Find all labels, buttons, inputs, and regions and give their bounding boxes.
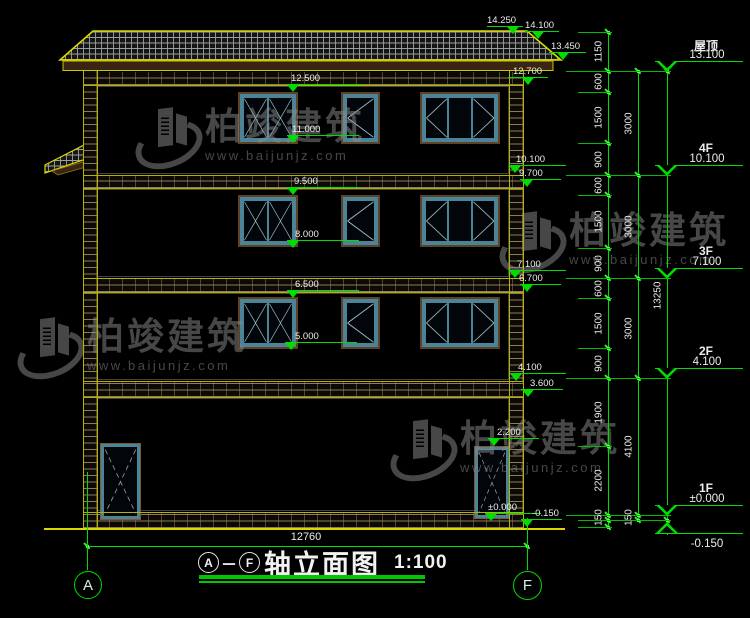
window-pane <box>268 302 293 344</box>
spot-elevation-line <box>509 270 566 271</box>
pane-glazing-lines <box>269 303 292 343</box>
spot-elevation-label: 2.200 <box>497 427 521 437</box>
wall-edge-line <box>83 381 523 382</box>
dim-label: 3000 <box>624 205 635 249</box>
window-pane <box>346 302 375 344</box>
brick-band <box>83 512 523 528</box>
dim-label: 900 <box>594 341 605 385</box>
window-pane <box>472 302 495 344</box>
dim-extension-line <box>578 446 612 447</box>
spot-elevation-label: 7.100 <box>517 259 541 269</box>
title-underline-thin <box>199 581 425 583</box>
window-frame <box>422 94 498 142</box>
window-pane <box>268 200 293 242</box>
dim-extension-line <box>566 515 671 516</box>
roof-tile-slope <box>60 31 561 60</box>
window-pane <box>425 302 448 344</box>
window-pane <box>268 97 293 139</box>
spot-elevation-label: 5.000 <box>295 331 319 341</box>
spot-elevation-label: ±0.000 <box>488 502 517 512</box>
spot-elevation-label: 14.100 <box>525 20 554 30</box>
spot-elevation-line <box>509 165 566 166</box>
pane-glazing-lines <box>426 201 447 241</box>
spot-elevation-label: 9.500 <box>294 176 318 186</box>
dim-extension-line <box>566 71 671 72</box>
window-frame <box>422 197 498 245</box>
title-scale: 1:100 <box>394 552 448 574</box>
spot-elevation-label: 12.500 <box>291 73 320 83</box>
spot-elevation-line <box>510 373 566 374</box>
spot-elevation-label: 6.700 <box>519 273 543 283</box>
main-roof <box>53 26 568 72</box>
pane-glazing-lines <box>347 303 374 343</box>
spot-elevation-label: 10.100 <box>516 154 545 164</box>
window-frame <box>240 197 296 245</box>
wall-edge-line <box>83 512 523 513</box>
window <box>420 297 500 349</box>
spot-elevation-label: 8.000 <box>295 229 319 239</box>
spot-elevation-line <box>521 389 563 390</box>
spot-elevation-label: 12.700 <box>513 66 542 76</box>
title-underline-thick <box>199 575 425 579</box>
left-awning <box>42 138 88 178</box>
pane-glazing-lines <box>347 98 374 138</box>
dim-chain-line <box>667 63 668 535</box>
dim-extension-line <box>566 378 671 379</box>
title-axis-bubble-f: F <box>239 552 260 573</box>
dim-label: 3000 <box>624 306 635 350</box>
pane-glazing-lines <box>473 201 494 241</box>
axis-bubble-a: A <box>74 571 102 599</box>
elevation-drawing-canvas: 柏竣建筑 www.baijunjz.com 柏竣建筑 www.baijunjz.… <box>0 0 750 618</box>
pane-glazing-lines <box>426 303 447 343</box>
dim-label: 1900 <box>594 390 605 434</box>
window <box>341 92 380 144</box>
axis-line <box>527 518 528 570</box>
window-pane <box>346 200 375 242</box>
door <box>100 443 141 520</box>
spot-elevation-line <box>287 290 359 291</box>
window-pane <box>448 97 471 139</box>
window-frame <box>422 299 498 347</box>
dim-label: 1500 <box>594 96 605 140</box>
ground-line <box>44 528 565 530</box>
spot-elevation-line <box>508 77 548 78</box>
pane-glazing-lines <box>244 98 267 138</box>
brick-band <box>83 381 523 397</box>
wall-edge-vline <box>83 71 84 528</box>
spot-elevation-label: 6.500 <box>295 279 319 289</box>
spot-elevation-line <box>520 179 561 180</box>
door-leaf-lines <box>104 447 137 516</box>
door-frame <box>101 444 140 519</box>
window-pane <box>346 97 375 139</box>
pane-glazing-lines <box>426 98 447 138</box>
spot-elevation-label: 13.450 <box>551 41 580 51</box>
spot-elevation-label: 4.100 <box>518 362 542 372</box>
axis-bubble-f: F <box>513 571 542 600</box>
spot-elevation-line <box>520 284 561 285</box>
dim-label: 13250 <box>653 274 664 318</box>
level-symbol-line <box>655 533 743 534</box>
window-frame <box>240 299 296 347</box>
floor-elevation: 13.100 <box>676 49 738 61</box>
window-pane <box>448 302 471 344</box>
spot-elevation-label: 14.250 <box>487 15 516 25</box>
floor-elevation: 7.100 <box>676 256 738 268</box>
window-pane <box>425 200 448 242</box>
window-pane <box>243 200 268 242</box>
window <box>420 92 500 144</box>
pane-glazing-lines <box>473 98 494 138</box>
spot-elevation-line <box>488 438 539 439</box>
floor-elevation: -0.150 <box>676 538 738 550</box>
window <box>420 195 500 247</box>
wall-pier <box>509 71 523 528</box>
dim-chain-line <box>638 71 639 520</box>
roof-fascia <box>63 61 553 71</box>
spot-elevation-label: 11.000 <box>292 124 320 134</box>
window-pane <box>425 97 448 139</box>
wall-edge-line <box>83 397 523 398</box>
dim-extension-line <box>566 175 671 176</box>
dim-label: 4100 <box>624 425 635 469</box>
wall-edge-vline <box>523 71 524 528</box>
spot-elevation-line <box>525 31 559 32</box>
spot-elevation-line <box>549 52 586 53</box>
watermark-logo-icon <box>20 316 80 374</box>
dim-label: 3000 <box>624 101 635 145</box>
wall-pier <box>83 71 97 528</box>
spot-elevation-label: 3.600 <box>530 378 554 388</box>
floor-elevation: 10.100 <box>676 153 738 165</box>
title-axis-bubble-a: A <box>198 552 219 573</box>
facade-panel <box>97 398 509 511</box>
pane-glazing-lines <box>269 98 292 138</box>
pane-glazing-lines <box>244 303 267 343</box>
window-pane <box>472 97 495 139</box>
dim-label: 150 <box>594 496 605 540</box>
dim-label: 1500 <box>594 200 605 244</box>
title-dash: － <box>221 551 237 575</box>
spot-elevation-line <box>285 342 357 343</box>
window-frame <box>343 197 378 245</box>
dim-label: 1500 <box>594 301 605 345</box>
spot-elevation-line <box>287 240 359 241</box>
axis-line <box>87 472 88 570</box>
spot-elevation-line <box>287 84 362 85</box>
window-frame <box>343 299 378 347</box>
wall-edge-line <box>83 292 523 293</box>
spot-elevation-line <box>287 187 359 188</box>
pane-glazing-lines <box>473 303 494 343</box>
pane-glazing-lines <box>347 201 374 241</box>
floor-elevation: ±0.000 <box>676 493 738 505</box>
window-pane <box>243 302 268 344</box>
wall-edge-vline <box>97 71 98 528</box>
dim-label: 150 <box>624 496 635 540</box>
floor-elevation: 4.100 <box>676 356 738 368</box>
window-pane <box>448 200 471 242</box>
spot-elevation-line <box>487 26 523 27</box>
overall-width-dimension: 12760 <box>281 531 331 543</box>
spot-elevation-line <box>287 135 359 136</box>
spot-elevation-label: -0.150 <box>532 508 559 518</box>
spot-elevation-label: 9.700 <box>519 168 543 178</box>
pane-glazing-lines <box>244 201 267 241</box>
wall-edge-vline <box>509 71 510 528</box>
pane-glazing-lines <box>269 201 292 241</box>
window-pane <box>472 200 495 242</box>
window-pane <box>243 97 268 139</box>
